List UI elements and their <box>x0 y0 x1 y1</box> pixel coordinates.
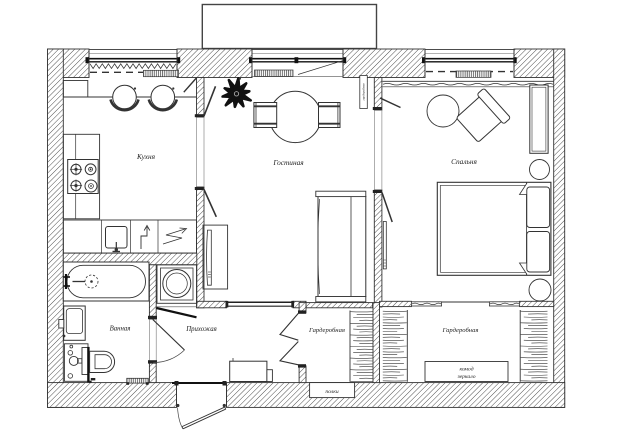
svg-text:Спальня: Спальня <box>451 157 477 166</box>
svg-text:зеркало: зеркало <box>456 374 475 380</box>
svg-text:комод: комод <box>459 366 473 373</box>
svg-text:Гостиная: Гостиная <box>272 158 304 167</box>
svg-text:Ванная: Ванная <box>110 326 131 333</box>
svg-text:Гардеробная: Гардеробная <box>442 327 479 334</box>
svg-text:Кухня: Кухня <box>136 152 156 161</box>
svg-text:полки: полки <box>325 389 339 395</box>
svg-text:Прихожая: Прихожая <box>185 326 217 333</box>
svg-text:Гардеробная: Гардеробная <box>308 327 345 334</box>
svg-text:гардеробная: гардеробная <box>362 83 366 100</box>
